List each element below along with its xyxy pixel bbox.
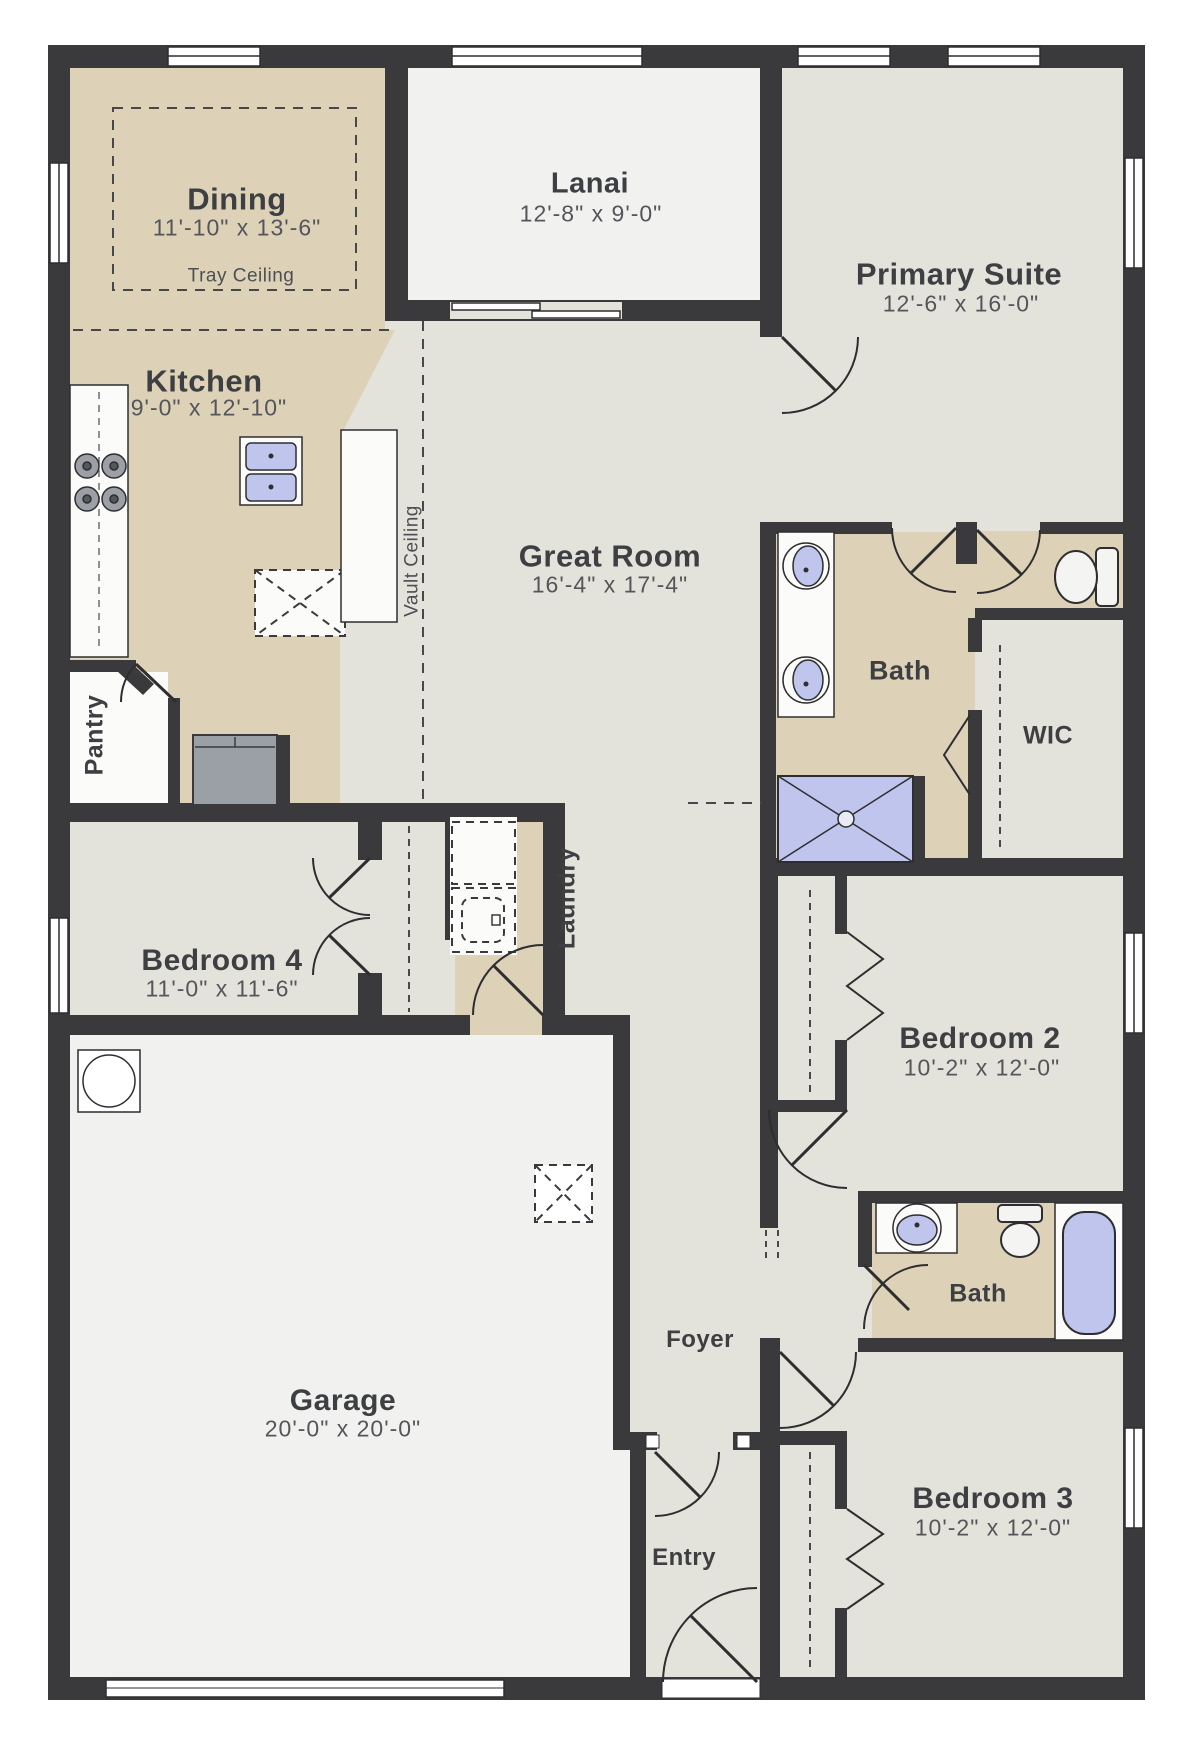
- wall-pantry-right: [168, 698, 180, 805]
- wall-garage-right: [613, 1035, 630, 1435]
- wall-closet2-stub-bottom: [835, 1040, 847, 1102]
- bedroom4-dims: 11'-0" x 11'-6": [145, 978, 298, 1001]
- wall-garage-right-lower: [630, 1450, 646, 1680]
- kitchen-counter: [70, 385, 128, 657]
- front-door-opening: [662, 1679, 760, 1698]
- garage-dims: 20'-0" x 20'-0": [265, 1418, 421, 1441]
- bedroom2-dims: 10'-2" x 12'-0": [904, 1057, 1060, 1080]
- window-right-bed2: [1125, 933, 1143, 1033]
- floor-garage-2: [613, 1450, 630, 1678]
- water-heater: [78, 1050, 140, 1112]
- door-threshold-garage: [646, 1435, 659, 1448]
- wall-wic-left-b: [968, 710, 982, 860]
- kitchen-dims: 9'-0" x 12'-10": [131, 397, 287, 420]
- wall-entry-right: [760, 1352, 780, 1678]
- wall-vestibule-stub: [760, 1106, 778, 1228]
- dining-dims: 11'-10" x 13'-6": [153, 217, 322, 240]
- window-left-dining: [50, 163, 68, 263]
- lanai-dims: 12'-8" x 9'-0": [520, 203, 663, 226]
- window-left-bed4: [50, 918, 68, 1013]
- sliding-door: [450, 302, 622, 319]
- kitchen-sink: [240, 437, 302, 505]
- laundry-door-opening: [470, 1015, 542, 1035]
- window-top-suite-1: [798, 47, 890, 66]
- dining-name: Dining: [187, 184, 286, 215]
- pantry-name: Pantry: [83, 695, 108, 776]
- shower: [778, 776, 913, 862]
- primary-suite-name: Primary Suite: [856, 259, 1062, 290]
- vault-ceiling-note: Vault Ceiling: [403, 505, 422, 617]
- attic-access-garage: [535, 1165, 592, 1222]
- window-top-suite-2: [948, 47, 1040, 66]
- great-room-name: Great Room: [519, 541, 701, 572]
- refrigerator: [193, 735, 277, 805]
- wall-fridge-stub: [277, 735, 290, 805]
- primary-bath-name: Bath: [869, 658, 931, 685]
- wall-closet3-stub-top: [835, 1445, 847, 1509]
- bathtub: [1055, 1203, 1123, 1340]
- wall-closet3-top: [760, 1431, 847, 1445]
- wall-closet2-left: [760, 876, 778, 1106]
- wall-bed4-right-bottom: [358, 973, 382, 1017]
- great-room-dims: 16'-4" x 17'-4": [532, 574, 688, 597]
- kitchen-island: [341, 430, 397, 622]
- wall-bath-top-right: [1040, 522, 1123, 534]
- laundry-name: Laundry: [555, 847, 580, 949]
- wall-bath2-left: [858, 1191, 872, 1267]
- primary-vanity: [778, 532, 834, 717]
- wall-shower-stub: [913, 776, 925, 862]
- washer-dryer: [450, 817, 517, 955]
- wall-wc-bottom: [975, 608, 1123, 620]
- wall-bed3-stub: [760, 1338, 780, 1352]
- wall-bath2-top: [858, 1191, 1123, 1203]
- kitchen-name: Kitchen: [145, 366, 262, 397]
- foyer-name: Foyer: [666, 1328, 734, 1352]
- wall-outer-left: [48, 45, 70, 1700]
- bath2-name: Bath: [949, 1282, 1007, 1307]
- attic-access-kitchen: [255, 570, 345, 636]
- lanai-name: Lanai: [551, 170, 629, 199]
- bedroom3-name: Bedroom 3: [912, 1484, 1073, 1514]
- bedroom4-name: Bedroom 4: [141, 946, 302, 976]
- window-right-bed3: [1125, 1428, 1143, 1528]
- bath2-vanity: [876, 1203, 957, 1253]
- toilet-bath2: [998, 1205, 1042, 1257]
- wall-closet2-stub-top: [835, 876, 847, 934]
- wall-bath-left: [760, 532, 776, 862]
- window-lanai-screen: [452, 47, 642, 66]
- toilet-primary: [1055, 548, 1118, 606]
- floor-garage: [70, 1035, 613, 1678]
- bedroom2-name: Bedroom 2: [899, 1024, 1060, 1054]
- primary-suite-dims: 12'-6" x 16'-0": [883, 293, 1039, 316]
- wic-name: WIC: [1023, 724, 1073, 749]
- entry-name: Entry: [652, 1546, 716, 1570]
- wall-wc-jog: [956, 522, 977, 564]
- wall-bed4-right-top: [358, 822, 382, 860]
- bedroom3-dims: 10'-2" x 12'-0": [915, 1517, 1071, 1540]
- window-top-dining: [168, 47, 260, 66]
- wall-garage-top: [48, 1015, 630, 1035]
- wall-closet3-stub-bottom: [835, 1608, 847, 1678]
- window-right-suite: [1125, 158, 1143, 268]
- wall-suite-divider: [760, 63, 782, 337]
- wall-wic-left-a: [968, 618, 982, 652]
- door-threshold-foyer: [737, 1435, 750, 1448]
- garage-name: Garage: [290, 1386, 396, 1416]
- dining-note: Tray Ceiling: [188, 267, 295, 286]
- floor-plan: Dining 11'-10" x 13'-6" Tray Ceiling Lan…: [0, 0, 1200, 1748]
- wall-lanai-left: [385, 63, 408, 321]
- garage-door: [106, 1680, 504, 1697]
